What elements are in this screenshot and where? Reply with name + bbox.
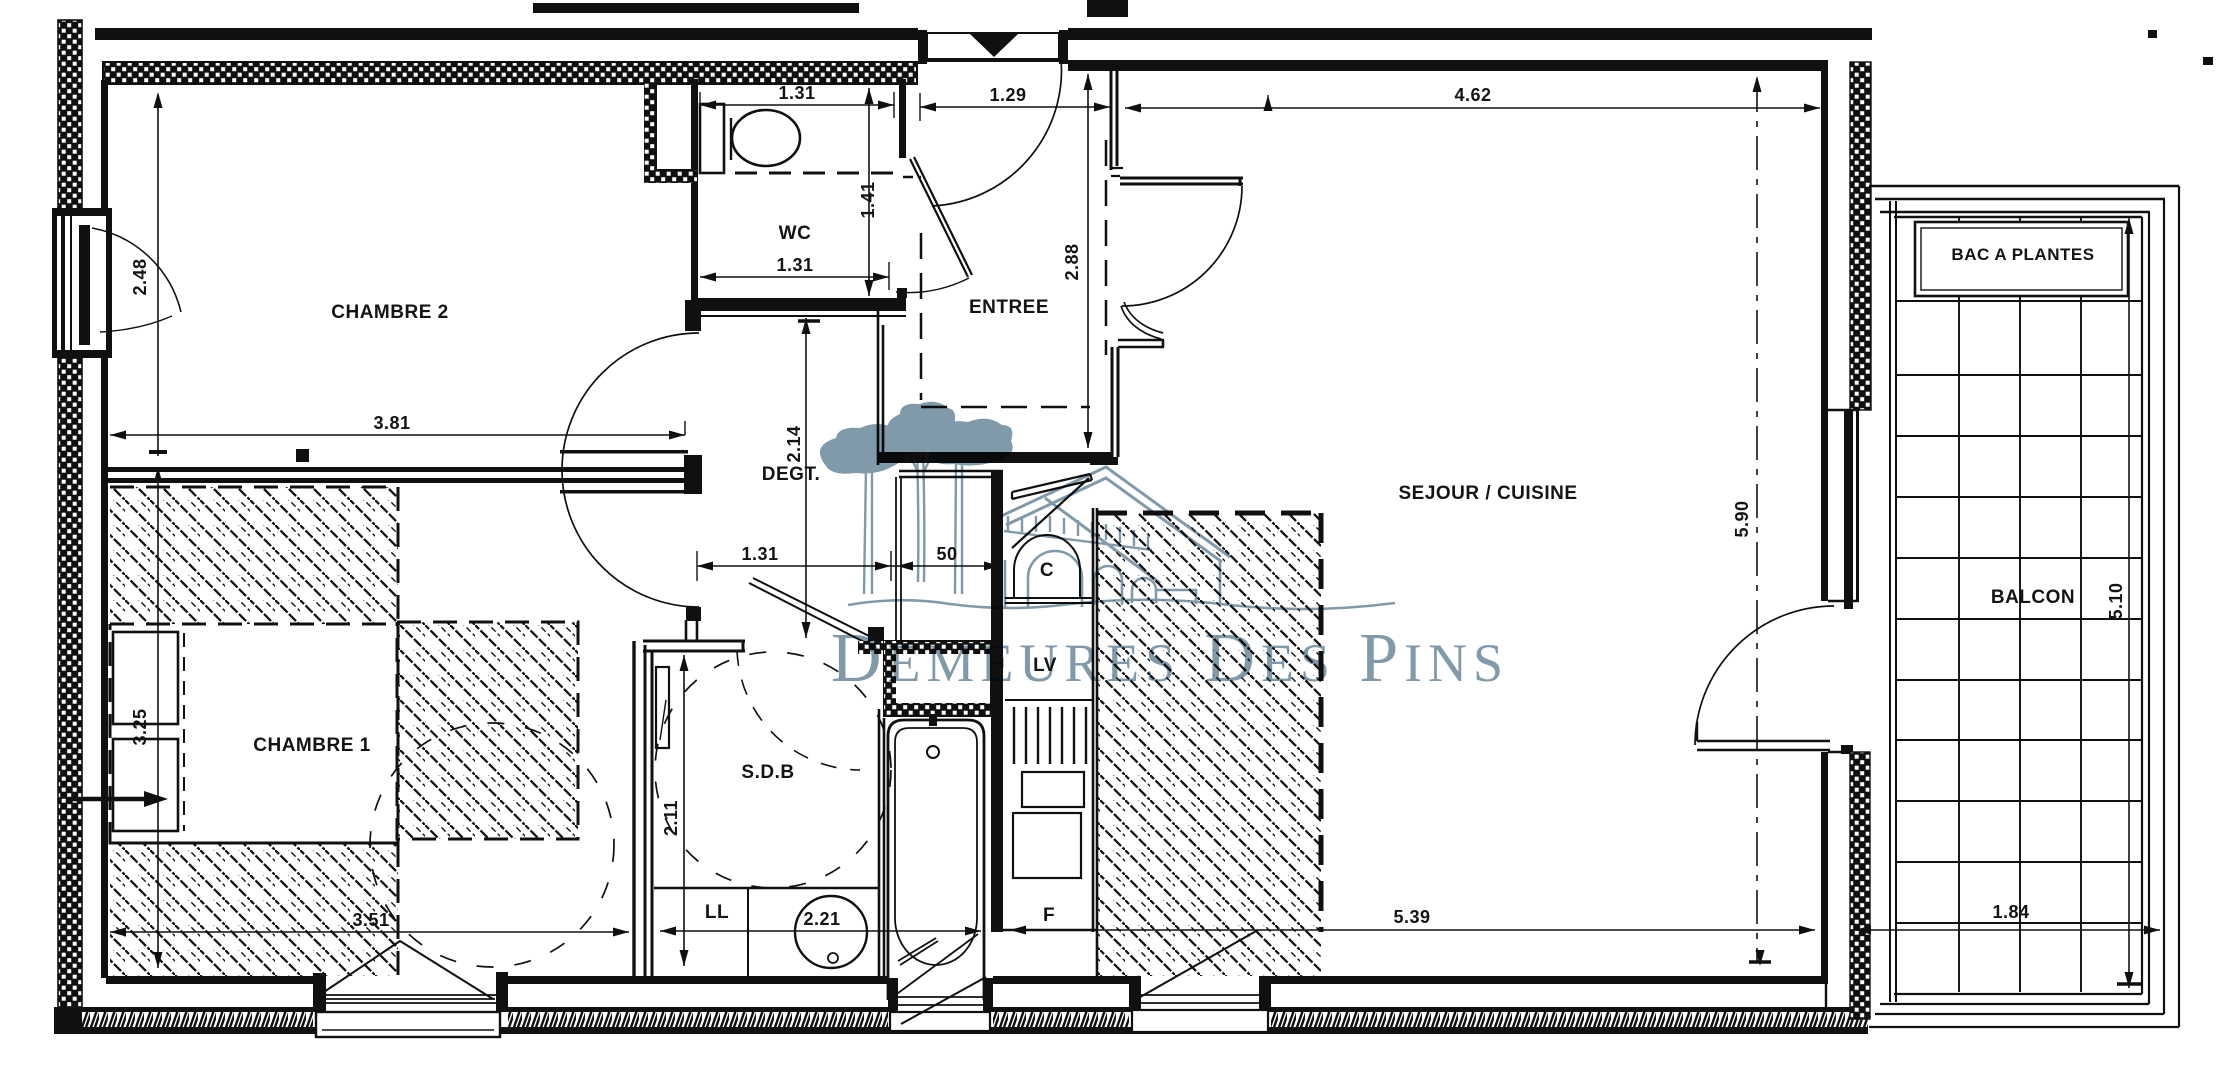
- svg-text:BAC A PLANTES: BAC A PLANTES: [1951, 245, 2094, 264]
- svg-text:2.48: 2.48: [130, 258, 150, 295]
- svg-text:WC: WC: [779, 223, 812, 244]
- svg-text:2.11: 2.11: [661, 800, 681, 836]
- svg-text:CHAMBRE 1: CHAMBRE 1: [253, 735, 370, 756]
- svg-text:1.31: 1.31: [776, 255, 813, 275]
- svg-text:BALCON: BALCON: [1991, 587, 2075, 608]
- svg-text:1.29: 1.29: [989, 85, 1026, 105]
- svg-text:SEJOUR / CUISINE: SEJOUR / CUISINE: [1398, 483, 1577, 504]
- svg-text:DEGT.: DEGT.: [762, 464, 820, 485]
- svg-text:2.21: 2.21: [803, 909, 840, 929]
- svg-text:1.31: 1.31: [741, 544, 778, 564]
- svg-text:5.90: 5.90: [1732, 500, 1752, 537]
- svg-text:5.39: 5.39: [1393, 907, 1430, 927]
- svg-text:3.81: 3.81: [373, 413, 410, 433]
- svg-text:LL: LL: [705, 902, 729, 923]
- svg-text:2.88: 2.88: [1062, 243, 1082, 280]
- svg-text:5.10: 5.10: [2106, 582, 2126, 619]
- svg-text:F: F: [1043, 905, 1055, 926]
- svg-text:ENTREE: ENTREE: [969, 297, 1049, 318]
- svg-text:4.62: 4.62: [1454, 85, 1491, 105]
- svg-text:1.84: 1.84: [1992, 902, 2029, 922]
- svg-text:1.41: 1.41: [858, 181, 878, 218]
- svg-text:S.D.B: S.D.B: [741, 762, 794, 783]
- svg-text:C: C: [1040, 560, 1054, 581]
- svg-text:1.31: 1.31: [778, 83, 815, 103]
- svg-text:2.14: 2.14: [784, 425, 804, 462]
- svg-text:3.25: 3.25: [130, 708, 150, 745]
- svg-text:CHAMBRE 2: CHAMBRE 2: [331, 302, 448, 323]
- svg-text:3.51: 3.51: [352, 910, 389, 930]
